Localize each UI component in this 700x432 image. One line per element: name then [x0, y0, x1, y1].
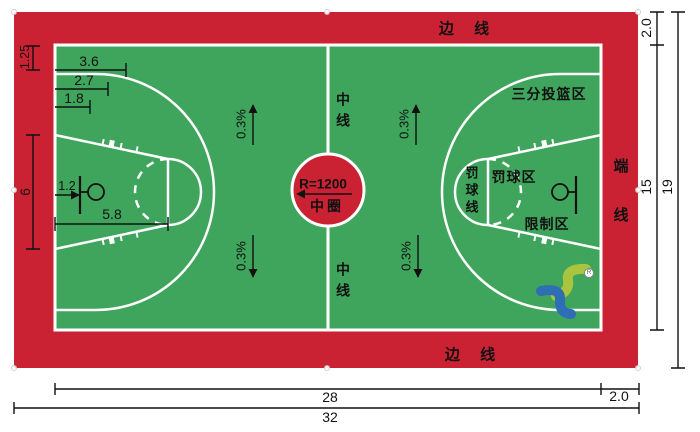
- registered-mark: R: [587, 270, 591, 276]
- restricted-area-label: 限制区: [525, 217, 570, 231]
- dim-three-point-a: 3.6: [79, 54, 98, 68]
- centerline-label-top: 中线: [336, 92, 350, 134]
- dim-three-point-b: 2.7: [74, 73, 93, 87]
- slope-label-lower-right: 0.3%: [400, 241, 413, 271]
- sideline-label-bottom: 边 线: [445, 348, 503, 363]
- dim-key-base-width: 6: [18, 188, 32, 196]
- court-diagram: 边 线 边 线 端线 中线 中线 R=1200 中圈 三分投篮区 罚球线 罚球区…: [0, 0, 700, 432]
- dim-court-width: 15: [639, 179, 653, 195]
- sideline-label-top: 边 线: [439, 22, 497, 37]
- dim-total-width: 19: [660, 179, 674, 195]
- dim-three-point-c: 1.8: [64, 91, 83, 105]
- dim-court-length: 28: [322, 390, 338, 404]
- slope-label-lower-left: 0.3%: [235, 241, 248, 271]
- endline-label: 端线: [613, 158, 628, 256]
- slope-label-upper-left: 0.3%: [235, 109, 248, 139]
- three-point-area-label: 三分投篮区: [512, 87, 587, 101]
- dim-free-throw-distance: 5.8: [102, 207, 121, 221]
- dim-buffer-end: 2.0: [609, 389, 628, 403]
- center-circle-label: 中圈: [310, 199, 344, 213]
- centerline-label-bottom: 中线: [336, 262, 350, 304]
- dim-corner-offset: 1.25: [19, 45, 32, 69]
- dim-buffer-top: 2.0: [639, 18, 653, 37]
- free-throw-line-label: 罚球线: [465, 166, 478, 217]
- center-radius-label: R=1200: [299, 177, 347, 191]
- dim-total-length: 32: [322, 410, 338, 424]
- free-throw-area-label: 罚球区: [492, 170, 537, 184]
- dim-backboard-offset: 1.2: [58, 180, 75, 193]
- slope-label-upper-right: 0.3%: [398, 109, 411, 139]
